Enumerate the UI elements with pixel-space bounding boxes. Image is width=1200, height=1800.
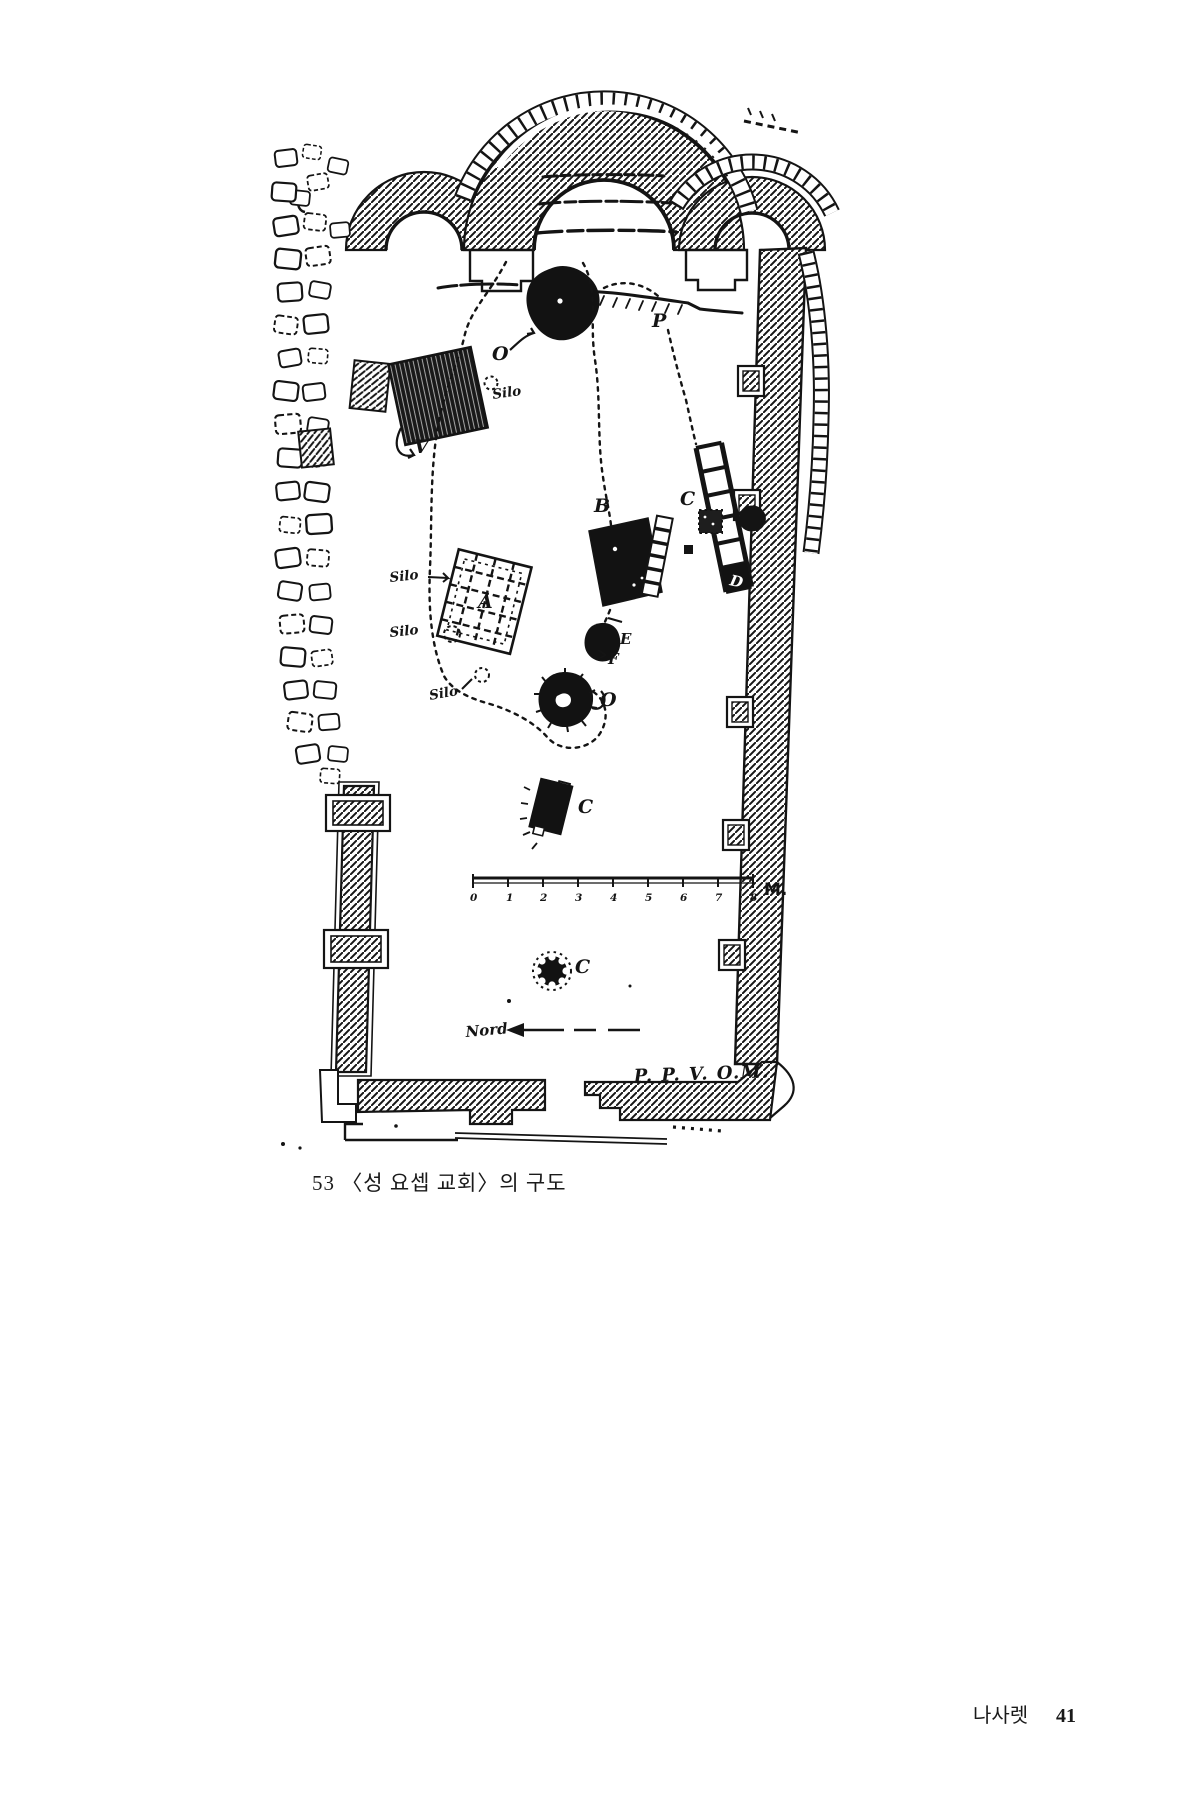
label-f: F [607, 650, 620, 668]
post-hole [684, 545, 693, 554]
cistern-o: O [534, 668, 617, 732]
scale-tick-7: 7 [715, 892, 723, 904]
pillar-c-lower: C [533, 952, 590, 990]
left-wall [271, 144, 390, 1076]
structure-b: B [589, 495, 693, 606]
scale-unit: M. [764, 880, 787, 900]
label-silo-4: Silo [428, 683, 459, 704]
page-number: 41 [1056, 1705, 1076, 1727]
label-e: E [619, 630, 632, 648]
scale-tick-3: 3 [575, 892, 582, 904]
label-c-right: C [680, 488, 695, 510]
right-wall-pilaster [738, 366, 764, 396]
book-page: O P V Silo [0, 0, 1200, 1800]
scale-tick-0: 0 [470, 892, 478, 904]
structure-v: V [388, 347, 487, 458]
silo-4: Silo [428, 668, 489, 704]
scale-tick-5: 5 [645, 892, 652, 904]
scale-tick-6: 6 [680, 892, 688, 904]
scale-tick-4: 4 [610, 892, 617, 904]
scale-tick-2: 2 [539, 892, 547, 904]
pillar-c-middle: C [520, 777, 593, 849]
left-wall-buttress [324, 930, 388, 968]
structure-a: A [437, 549, 531, 654]
right-wall-pilaster [727, 697, 753, 727]
church-plan-figure: O P V Silo [0, 0, 1200, 1800]
wall-fragment [350, 360, 391, 412]
north-arrowhead [506, 1023, 524, 1037]
label-silo-3: Silo [389, 622, 420, 641]
pier-base-right [686, 250, 747, 290]
right-wall-pilaster [723, 820, 749, 850]
label-a: A [476, 591, 493, 613]
wall-dark-spot [739, 506, 766, 532]
feature-e-f: E F [585, 618, 632, 668]
silo-1: Silo [485, 377, 523, 403]
scale-tick-8: 8 [750, 892, 758, 904]
label-c-lower: C [575, 956, 590, 978]
label-silo-1: Silo [491, 383, 522, 403]
scale-tick-1: 1 [506, 892, 513, 904]
label-v: V [414, 436, 431, 458]
right-wall-pilaster [719, 940, 745, 970]
figure-caption: 53 〈성 요셉 교회〉의 구도 [312, 1171, 567, 1195]
running-title: 나사렛 [973, 1704, 1028, 1727]
label-o-top: O [492, 343, 509, 365]
label-c-middle: C [578, 796, 593, 818]
wall-fragment [298, 428, 334, 467]
left-wall-buttress [326, 795, 390, 831]
rock-outcrop [526, 266, 599, 340]
page-footer: 나사렛 41 [973, 1704, 1076, 1727]
label-b: B [593, 495, 610, 517]
right-wall [719, 248, 821, 1064]
north-label: Nord [464, 1019, 509, 1041]
label-p: P [651, 310, 667, 332]
ruin-marks-top-right [744, 108, 802, 133]
silo-2: Silo [389, 567, 448, 586]
north-arrow: Nord [464, 1019, 640, 1041]
label-silo-2: Silo [389, 567, 420, 586]
